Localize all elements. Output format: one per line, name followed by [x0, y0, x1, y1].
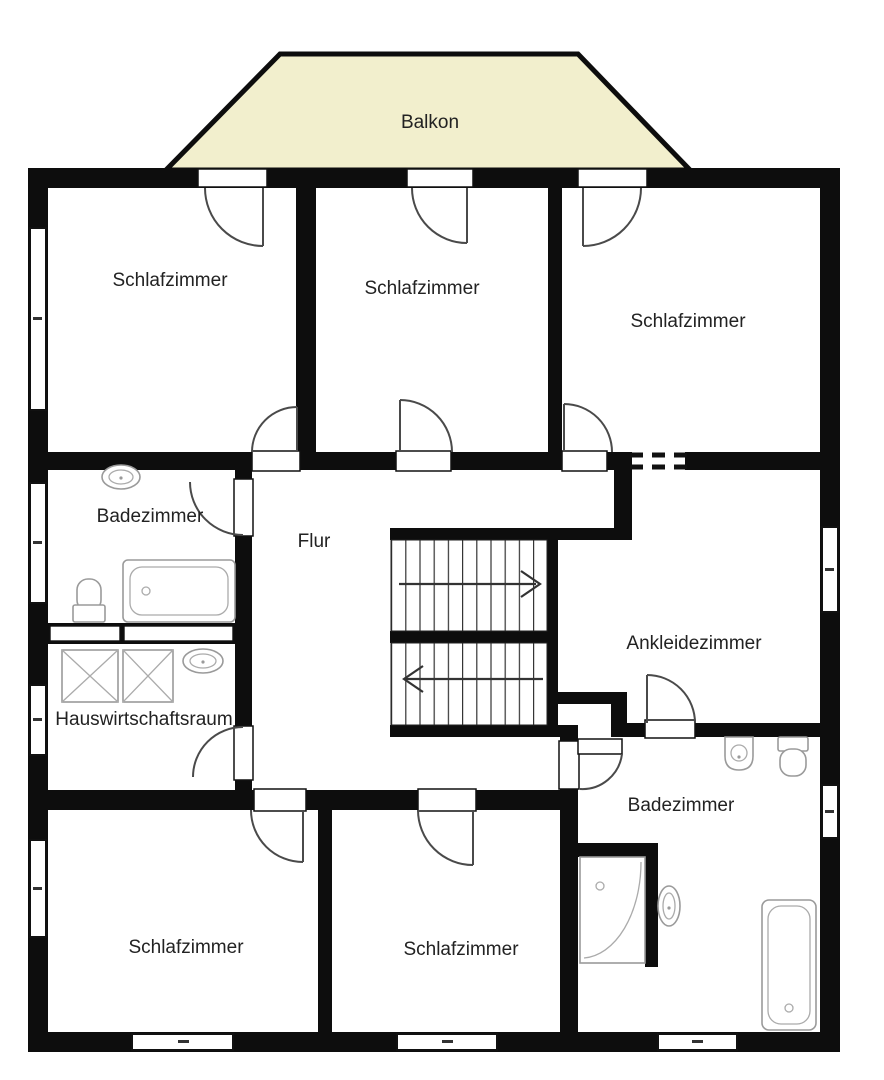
- label-balkon: Balkon: [401, 112, 459, 133]
- label-ankleidezimmer: Ankleidezimmer: [626, 633, 762, 654]
- label-flur: Flur: [298, 531, 331, 552]
- room-ankleidezimmer: [627, 470, 820, 723]
- wall-sz4-sz5: [318, 810, 332, 1032]
- room-schlafzimmer-bottom-middle: [332, 810, 560, 1032]
- stair-wall-top: [390, 528, 632, 540]
- label-schlafzimmer-tl: Schlafzimmer: [112, 270, 228, 291]
- sink-icon: [658, 886, 680, 926]
- washing-machine-icon: [62, 650, 118, 702]
- wall-sz2-sz3: [548, 188, 562, 452]
- label-schlafzimmer-tm: Schlafzimmer: [364, 278, 480, 299]
- wall-sz1-sz2: [296, 188, 316, 452]
- balcony-door-threshold: [407, 169, 473, 187]
- stair-flight-lower: [391, 643, 547, 725]
- room-schlafzimmer-bottom-left: [48, 810, 318, 1032]
- label-hauswirtschaftsraum: Hauswirtschaftsraum: [55, 709, 232, 730]
- sink-icon: [102, 465, 140, 489]
- room-schlafzimmer-top-left: [48, 188, 296, 452]
- label-badezimmer-upper: Badezimmer: [97, 506, 204, 527]
- shower-wall-right: [645, 843, 658, 967]
- sink-icon: [725, 737, 753, 770]
- toilet-icon: [778, 737, 808, 776]
- stair-flight-upper: [391, 540, 547, 631]
- stair-wall-bottom: [390, 725, 578, 737]
- room-schlafzimmer-top-middle: [316, 188, 548, 452]
- bathtub-icon: [762, 900, 816, 1030]
- label-schlafzimmer-tr: Schlafzimmer: [630, 311, 746, 332]
- label-badezimmer-lower: Badezimmer: [628, 795, 735, 816]
- balcony-door-threshold: [578, 169, 647, 187]
- sink-icon: [183, 649, 223, 673]
- toilet-icon: [73, 579, 105, 622]
- bathtub-icon: [123, 560, 235, 622]
- stair-wall-mid: [390, 631, 547, 643]
- floorplan-canvas: Balkon Schlafzimmer Schlafzimmer Schlafz…: [0, 0, 884, 1080]
- shower-icon: [580, 857, 645, 963]
- stair-wall-right: [547, 540, 558, 737]
- label-schlafzimmer-bm: Schlafzimmer: [403, 939, 519, 960]
- washing-machine-icon: [123, 650, 173, 702]
- floorplan-drawing: Balkon Schlafzimmer Schlafzimmer Schlafz…: [0, 0, 884, 1080]
- balcony-door-threshold: [198, 169, 267, 187]
- dashed-opening: [630, 452, 687, 470]
- label-schlafzimmer-bl: Schlafzimmer: [128, 937, 244, 958]
